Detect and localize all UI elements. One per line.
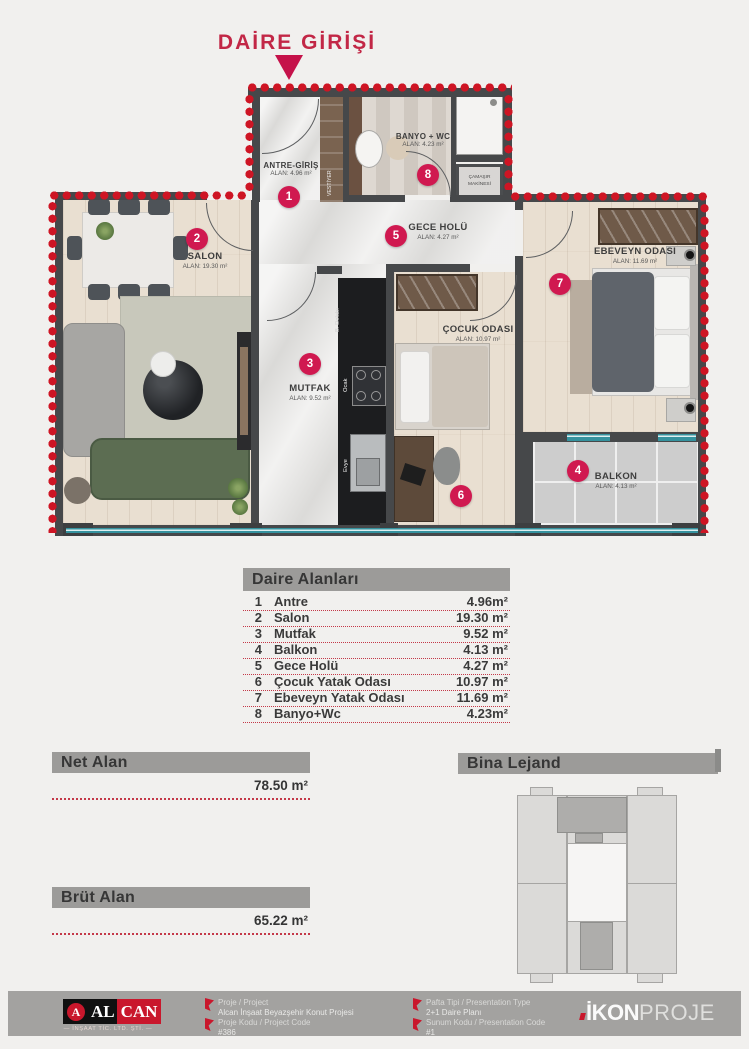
footer-entry-label: Proje Kodu / Project Code xyxy=(218,1019,311,1027)
row-num: 4 xyxy=(249,642,262,657)
row-name: Salon xyxy=(274,610,456,625)
brut-alan-header: Brüt Alan xyxy=(52,887,310,908)
net-alan-block: Net Alan 78.50 m² xyxy=(52,752,310,800)
washing-machine-label: MAKİNESİ xyxy=(459,182,500,189)
wall xyxy=(343,97,349,202)
red-dotted-boundary xyxy=(504,93,513,190)
room-area: ALAN: 4.96 m² xyxy=(231,170,351,178)
row-num: 5 xyxy=(249,658,262,673)
ikon-red-tick-icon xyxy=(579,1013,586,1020)
dining-chair xyxy=(88,284,110,300)
room-label-salon: SALON ALAN: 19.30 m² xyxy=(145,252,265,271)
wall xyxy=(386,264,394,527)
wall xyxy=(523,442,533,527)
alcan-logo-square: A xyxy=(63,999,89,1024)
net-alan-header: Net Alan xyxy=(52,752,310,773)
table-row: 6Çocuk Yatak Odası10.97 m² xyxy=(243,675,510,691)
cocuk-pillow xyxy=(400,351,430,423)
building-core xyxy=(567,843,627,922)
footer-entry-label: Pafta Tipi / Presentation Type xyxy=(426,999,530,1007)
room-area: ALAN: 11.69 m² xyxy=(575,258,695,266)
cocuk-blanket xyxy=(432,346,488,427)
burner xyxy=(371,391,381,401)
row-value: 9.52 m² xyxy=(463,626,508,641)
row-value: 4.13 m² xyxy=(463,642,508,657)
table-row: 4Balkon4.13 m² xyxy=(243,643,510,659)
washing-machine-label: ÇAMAŞIR xyxy=(459,175,500,182)
shower-drain xyxy=(490,99,497,106)
burner xyxy=(371,370,381,380)
alcan-subtitle: — İNŞAAT TİC. LTD. ŞTİ. — xyxy=(48,1027,168,1033)
wall xyxy=(386,264,470,272)
floor-plan-sheet: { "title": "DAİRE GİRİŞİ", "plan": { "ba… xyxy=(0,0,749,1049)
bina-lejand-bar-cap xyxy=(715,749,721,772)
row-value: 11.69 m² xyxy=(457,690,508,705)
salon-plant xyxy=(232,499,248,515)
wall xyxy=(317,266,342,274)
side-table xyxy=(64,477,91,504)
pillow xyxy=(654,276,690,330)
row-name: Çocuk Yatak Odası xyxy=(274,674,456,689)
tv-unit-wood xyxy=(240,347,248,435)
cocuk-wardrobe xyxy=(396,274,478,311)
lamp xyxy=(684,402,696,414)
sink-label: Evye xyxy=(344,459,350,472)
dining-chair xyxy=(118,199,140,215)
red-dotted-boundary xyxy=(48,200,57,533)
room-name: ANTRE-GİRİŞ xyxy=(231,161,351,170)
brut-alan-block: Brüt Alan 65.22 m² xyxy=(52,887,310,935)
bina-lejand-header: Bina Lejand xyxy=(458,753,718,774)
room-name: SALON xyxy=(145,252,265,263)
ebeveyn-wardrobe xyxy=(598,208,698,245)
table-row: 7Ebeveyn Yatak Odası11.69 m² xyxy=(243,691,510,707)
room-badge-6: 6 xyxy=(450,485,472,507)
brut-alan-value: 65.22 m² xyxy=(52,908,310,935)
building-highlight-tab xyxy=(575,833,603,843)
row-name: Balkon xyxy=(274,642,463,657)
burner xyxy=(356,370,366,380)
room-badge-5: 5 xyxy=(385,225,407,247)
table-plant xyxy=(96,222,114,240)
footer-bar: A AL CAN — İNŞAAT TİC. LTD. ŞTİ. — Proje… xyxy=(8,991,741,1036)
building-bottom-unit xyxy=(580,922,613,970)
row-num: 2 xyxy=(249,610,262,625)
balcony-window xyxy=(658,434,696,441)
sink-bowl xyxy=(356,458,380,486)
room-badge-1: 1 xyxy=(278,186,300,208)
alcan-initial: A xyxy=(67,1003,85,1021)
row-value: 10.97 m² xyxy=(456,674,508,689)
footer-entry-value: #1 xyxy=(426,1029,435,1037)
row-value: 4.27 m² xyxy=(463,658,508,673)
room-label-cocuk: ÇOCUK ODASI ALAN: 10.97 m² xyxy=(418,325,538,344)
row-num: 1 xyxy=(249,594,262,609)
row-num: 3 xyxy=(249,626,262,641)
window-line xyxy=(66,528,698,533)
floor-plan: Ocak Evye B. Dolabı ÇAMAŞIR MAKİNESİ VES… xyxy=(0,0,749,560)
row-name: Ebeveyn Yatak Odası xyxy=(274,690,457,705)
balcony-door-window xyxy=(567,434,610,441)
desk-chair xyxy=(433,447,460,485)
pillow xyxy=(654,334,690,388)
red-dotted-boundary xyxy=(48,191,248,200)
table-row: 2Salon19.30 m² xyxy=(243,611,510,627)
footer-entry-label: Proje / Project xyxy=(218,999,268,1007)
salon-plant xyxy=(228,478,248,498)
red-dotted-boundary xyxy=(700,202,709,533)
row-name: Antre xyxy=(274,594,467,609)
row-value: 19.30 m² xyxy=(456,610,508,625)
wall xyxy=(450,195,511,202)
footer-entry-value: #386 xyxy=(218,1029,236,1037)
room-name: ÇOCUK ODASI xyxy=(418,325,538,336)
room-label-mutfak: MUTFAK ALAN: 9.52 m² xyxy=(250,384,370,403)
decor-plate xyxy=(150,351,176,377)
footer-entry-value: 2+1 Daire Planı xyxy=(426,1009,481,1017)
bina-lejand-block: Bina Lejand xyxy=(458,753,718,774)
alcan-logo: A AL CAN xyxy=(63,999,161,1024)
alcan-name-red: CAN xyxy=(117,999,162,1024)
net-alan-value: 78.50 m² xyxy=(52,773,310,800)
table-row: 5Gece Holü4.27 m² xyxy=(243,659,510,675)
row-num: 8 xyxy=(249,706,262,721)
dining-chair xyxy=(88,199,110,215)
building-tab xyxy=(530,973,553,983)
room-badge-8: 8 xyxy=(417,164,439,186)
building-right-wing xyxy=(627,795,677,974)
room-area: ALAN: 10.97 m² xyxy=(418,336,538,344)
footer-entry-label: Sunum Kodu / Presentation Code xyxy=(426,1019,545,1027)
room-badge-7: 7 xyxy=(549,273,571,295)
row-value: 4.96m² xyxy=(467,594,508,609)
room-label-antre: ANTRE-GİRİŞ ALAN: 4.96 m² xyxy=(231,161,351,178)
areas-table-header: Daire Alanları xyxy=(243,568,510,591)
room-name: BANYO + WC xyxy=(363,132,483,141)
room-badge-4: 4 xyxy=(567,460,589,482)
green-sofa xyxy=(90,438,250,500)
building-tab xyxy=(637,973,663,983)
flag-icon xyxy=(205,1018,214,1031)
dining-chair xyxy=(67,236,82,260)
row-name: Mutfak xyxy=(274,626,463,641)
row-name: Banyo+Wc xyxy=(274,706,467,721)
ikon-bold: İKON xyxy=(586,1002,639,1024)
dining-table xyxy=(82,212,174,288)
dining-chair xyxy=(148,199,170,215)
ikon-light: PROJE xyxy=(639,1002,715,1024)
row-name: Gece Holü xyxy=(274,658,463,673)
areas-table: Daire Alanları 1Antre4.96m² 2Salon19.30 … xyxy=(243,568,510,723)
row-value: 4.23m² xyxy=(467,706,508,721)
flag-icon xyxy=(205,998,214,1011)
table-row: 1Antre4.96m² xyxy=(243,595,510,611)
room-area: ALAN: 4.23 m² xyxy=(363,141,483,149)
red-dotted-boundary xyxy=(246,83,512,92)
building-highlight-unit xyxy=(557,797,627,833)
ebeveyn-blanket xyxy=(592,272,654,392)
alcan-name-black: AL xyxy=(89,999,117,1024)
ikonproje-logo: İKON PROJE xyxy=(580,1002,715,1024)
footer-entry-value: Alcan İnşaat Beyazşehir Konut Projesi xyxy=(218,1009,354,1017)
table-row: 3Mutfak9.52 m² xyxy=(243,627,510,643)
headboard xyxy=(690,264,698,400)
row-num: 6 xyxy=(249,674,262,689)
wall xyxy=(343,195,405,202)
room-badge-2: 2 xyxy=(186,228,208,250)
room-area: ALAN: 19.30 m² xyxy=(145,263,265,271)
room-area: ALAN: 4.13 m² xyxy=(556,483,676,491)
room-label-banyo: BANYO + WC ALAN: 4.23 m² xyxy=(363,132,483,149)
room-label-ebeveyn: EBEVEYN ODASI ALAN: 11.69 m² xyxy=(575,247,695,266)
room-name: EBEVEYN ODASI xyxy=(575,247,695,258)
row-num: 7 xyxy=(249,690,262,705)
fridge-label: B. Dolabı xyxy=(336,308,342,332)
flag-icon xyxy=(413,1018,422,1031)
red-dotted-boundary xyxy=(509,192,707,201)
room-area: ALAN: 9.52 m² xyxy=(250,395,370,403)
room-badge-3: 3 xyxy=(299,353,321,375)
flag-icon xyxy=(413,998,422,1011)
l-sofa xyxy=(63,323,125,457)
room-name: MUTFAK xyxy=(250,384,370,395)
table-row: 8Banyo+Wc4.23m² xyxy=(243,707,510,723)
wall xyxy=(451,155,511,162)
wall xyxy=(515,256,523,527)
building-legend xyxy=(508,787,678,983)
